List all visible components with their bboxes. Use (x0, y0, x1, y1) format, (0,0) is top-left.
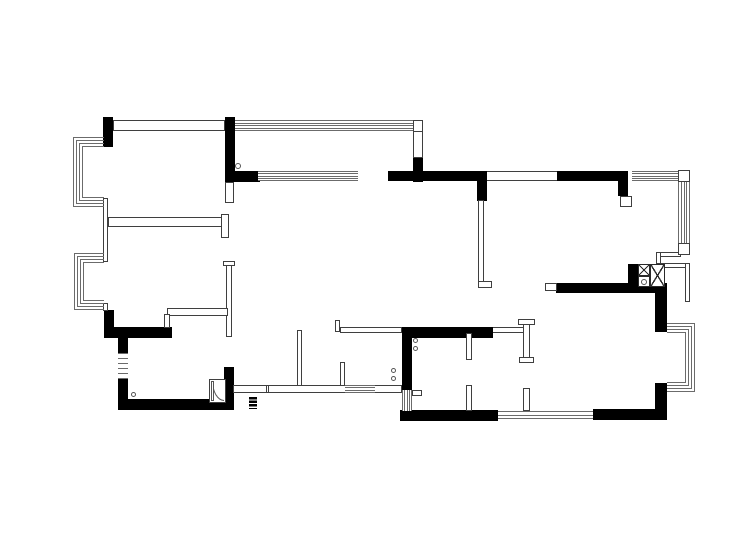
wall-south-link (412, 390, 422, 396)
wall-bedroom2-right (226, 262, 232, 337)
opening-top-right (487, 171, 557, 181)
window-balcony-inner-line (258, 180, 358, 181)
window-east-upper-line (689, 182, 690, 243)
wall-hall-partition1 (297, 330, 302, 388)
wall-stub-left-of-east-top (545, 283, 557, 291)
window-balcony-inner-line (258, 178, 358, 179)
wall-closet-right-cap2 (519, 357, 534, 363)
window-south-small-line (345, 392, 375, 393)
bay-window-northwest-pane (82, 146, 104, 198)
wall-top-right-jamb (620, 196, 632, 207)
window-kitchen-west-line (411, 390, 412, 411)
window-bath-west-line (118, 368, 128, 369)
wall-south-parapet-tick (266, 385, 269, 393)
window-balcony-north-line (235, 125, 413, 126)
window-south-bedroom-line (498, 411, 593, 412)
window-south-bedroom (498, 411, 593, 419)
wall-balcony-sill-left (235, 171, 260, 182)
window-kitchen-west-line (404, 390, 405, 411)
window-balcony-north-line (235, 128, 413, 129)
wall-step-4 (685, 263, 690, 302)
wall-bedroom1-right (225, 117, 235, 182)
floor-plan-canvas (0, 0, 750, 541)
window-northeast (632, 171, 678, 181)
window-south-small-line (345, 390, 375, 391)
window-south-small-line (345, 387, 375, 388)
window-east-upper-line (684, 182, 685, 243)
fixture-marker-kitchen-1 (413, 338, 418, 343)
wall-top-left-corner (103, 117, 113, 147)
wall-kitchen-bottom (400, 410, 498, 421)
wall-bedrooms-divider (108, 217, 222, 227)
window-northeast-line (632, 180, 678, 181)
fixture-marker-hall-1 (391, 368, 396, 373)
window-east-upper-line (681, 182, 682, 243)
window-balcony-north-line (235, 120, 413, 121)
window-south-small (345, 385, 375, 393)
window-balcony-inner-line (258, 176, 358, 177)
flue-box-small (638, 264, 650, 276)
wall-bath-top (104, 327, 172, 338)
window-balcony-north (235, 120, 413, 131)
window-kitchen-west-line (407, 390, 408, 411)
wall-bedroom1-jamb (225, 182, 234, 203)
wall-bedroom2-right-cap (223, 261, 235, 266)
wall-right-above-bay (655, 283, 667, 332)
pivot-marker-balcony (235, 163, 241, 169)
window-balcony-inner-line (258, 173, 358, 174)
window-bath-west (118, 353, 128, 379)
bay-window-east-pane (667, 332, 686, 383)
wall-bedrooms-divider-cap (221, 214, 229, 238)
flue-box-meter-circle (641, 279, 647, 285)
flue-box-large (650, 264, 665, 287)
wall-closet-right (523, 320, 530, 362)
wall-top-right (557, 171, 628, 181)
wall-closet-left-stub (466, 385, 472, 411)
window-south-small-line (345, 385, 375, 386)
wall-hall-south (340, 327, 402, 333)
window-bath-west-line (118, 363, 128, 364)
window-kitchen-west (402, 390, 412, 411)
box-window-end-east (678, 243, 690, 255)
box-balcony-corner (413, 120, 423, 132)
wall-rightrooms-divider (478, 200, 484, 287)
window-bath-west-line (118, 373, 128, 374)
window-balcony-north-line (235, 123, 413, 124)
door-bath-panel (211, 381, 214, 401)
window-northeast-line (632, 176, 678, 177)
wall-rightrooms-divider-foot (478, 281, 492, 288)
wall-kitchen-top (402, 327, 493, 338)
wall-living-top-stub (477, 181, 487, 201)
fixture-marker-hall-2 (391, 376, 396, 381)
window-south-bedroom-line (498, 415, 593, 416)
fixture-marker-kitchen-2 (413, 346, 418, 351)
wall-bath-left-upper (118, 338, 128, 353)
window-bath-west-line (118, 353, 128, 354)
window-kitchen-west-line (409, 390, 410, 411)
bay-window-west-pane (83, 262, 104, 301)
window-east-upper-line (678, 182, 679, 243)
wall-bedroom1-top (113, 120, 225, 131)
wall-living-top (388, 171, 487, 181)
window-east-upper (678, 182, 690, 243)
window-northeast-line (632, 171, 678, 172)
window-balcony-north-line (235, 130, 413, 131)
box-window-corner-ne (678, 170, 690, 182)
window-northeast-line (632, 173, 678, 174)
window-balcony-inner (258, 171, 358, 181)
wall-closet-right-stub (523, 388, 530, 411)
wall-bottom-right (593, 409, 667, 420)
wall-bedroom2-south-leg (164, 314, 170, 328)
opening-kitchen-lintel (493, 327, 523, 333)
window-south-bedroom-line (498, 418, 593, 419)
flue-box-meter (638, 276, 650, 287)
window-bath-west-line (118, 378, 128, 379)
wall-closet-left (466, 333, 472, 360)
window-bath-west-line (118, 358, 128, 359)
wall-south-parapet (233, 385, 402, 393)
wall-bedroom2-south (167, 308, 228, 316)
section-marker (249, 397, 257, 409)
window-kitchen-west-line (402, 390, 403, 411)
wall-closet-right-cap (518, 319, 535, 325)
pivot-marker-bath (131, 392, 136, 397)
window-east-upper-line (686, 182, 687, 243)
wall-top-right-stub (618, 181, 628, 196)
window-balcony-inner-line (258, 171, 358, 172)
window-northeast-line (632, 178, 678, 179)
